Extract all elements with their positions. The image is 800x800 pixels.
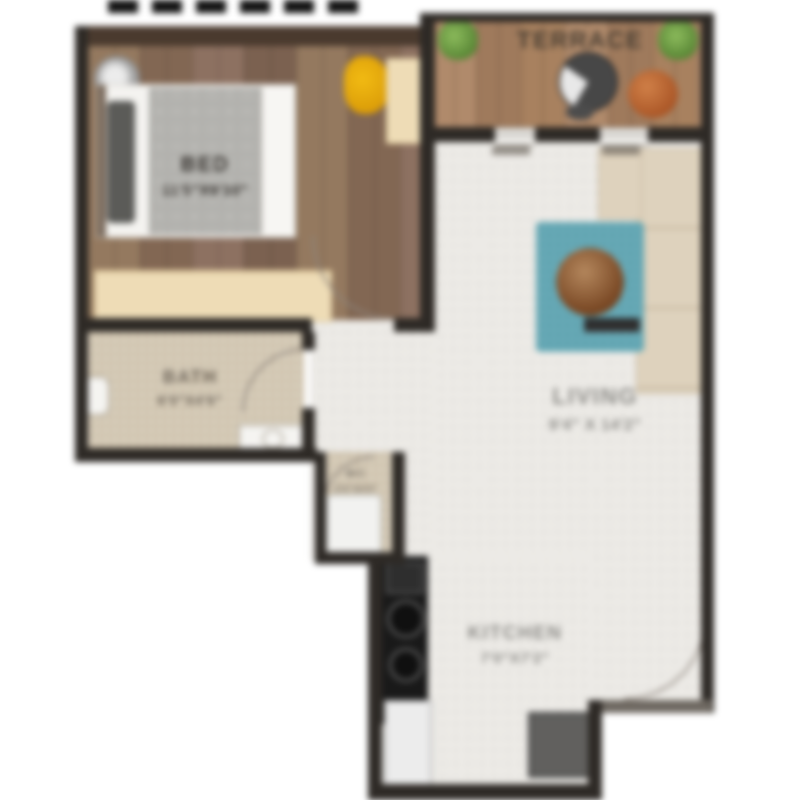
- wc-label: WC 2'6"X4'0": [326, 468, 386, 495]
- kitchen-label: KITCHEN 7'0"X7'2": [445, 622, 585, 669]
- floorplan-blur-layer: BED 11'5"X9'10" TERRACE LIVING 9'4" X 14…: [0, 0, 800, 800]
- wall-bath-right-stub: [302, 332, 315, 350]
- terrace-label: TERRACE: [495, 26, 665, 56]
- wall-terrace-top: [432, 13, 714, 22]
- terrace-chair: [566, 104, 594, 120]
- bedroom-dims: 11'5"X9'10": [115, 182, 295, 201]
- sofa: [636, 148, 702, 394]
- living-label: LIVING 9'4" X 14'2": [510, 382, 680, 436]
- wall-wc-right: [392, 452, 405, 564]
- kitchen-sink: [387, 600, 425, 638]
- balcony-railing: [108, 0, 360, 13]
- kitchen-sink-2: [389, 648, 423, 682]
- bedroom-name: BED: [115, 152, 295, 178]
- sofa-chaise: [598, 148, 642, 220]
- accent-armchair: [344, 56, 390, 114]
- wall-right: [701, 13, 714, 713]
- wc-name: WC: [326, 468, 386, 482]
- wall-kitchen-left: [368, 556, 382, 800]
- bath-label: BATH 6'0"X4'6": [120, 366, 260, 409]
- kitchen-appliance: [528, 712, 596, 778]
- wall-bedroom-bottom-left: [75, 318, 312, 332]
- floorplan-image: BED 11'5"X9'10" TERRACE LIVING 9'4" X 14…: [0, 0, 800, 800]
- wall-wc-left: [315, 452, 326, 564]
- wc-dims: 2'6"X4'0": [326, 484, 386, 495]
- coffee-table: [556, 248, 624, 316]
- living-name: LIVING: [510, 382, 680, 411]
- window-size-mark: [602, 146, 640, 155]
- wall-terrace-sill-left: [435, 127, 495, 142]
- entry-step: [602, 700, 712, 713]
- window: [495, 127, 535, 146]
- wall-bedroom-top: [78, 26, 424, 46]
- window-size-mark: [492, 146, 530, 155]
- kitchen-hob: [386, 562, 424, 594]
- wall-terrace-sill-right: [648, 127, 714, 142]
- plant-icon: [438, 20, 478, 60]
- living-dims: 9'4" X 14'2": [510, 416, 680, 436]
- terrace-table: [558, 52, 618, 112]
- kitchen-name: KITCHEN: [445, 622, 585, 646]
- bedroom-desk: [386, 58, 422, 144]
- wall-bath-right-lower: [302, 408, 315, 448]
- bath-sink: [86, 376, 110, 416]
- bedroom-label: BED 11'5"X9'10": [115, 152, 295, 201]
- wall-kitchen-right: [588, 700, 602, 796]
- bath-name: BATH: [120, 366, 260, 389]
- kitchen-counter: [380, 556, 428, 724]
- wall-kitchen-bottom: [368, 784, 602, 800]
- wall-bedroom-bottom-right: [394, 318, 435, 332]
- wall-bedroom-right: [420, 13, 435, 332]
- window: [600, 127, 648, 146]
- terrace-name: TERRACE: [495, 26, 665, 56]
- wall-terrace-sill-mid: [535, 127, 600, 142]
- wall-bath-bottom: [75, 448, 317, 462]
- fridge: [384, 700, 432, 786]
- kitchen-dims: 7'0"X7'2": [445, 650, 585, 669]
- bath-dims: 6'0"X4'6": [120, 392, 260, 410]
- wall-wc-bottom: [315, 552, 405, 564]
- vanity-basin: [262, 429, 284, 449]
- wall-left: [75, 26, 88, 462]
- bed-headboard: [97, 85, 106, 237]
- bedroom-dresser: [94, 270, 332, 322]
- rug-tray: [584, 318, 640, 332]
- terracotta-pot: [628, 70, 678, 118]
